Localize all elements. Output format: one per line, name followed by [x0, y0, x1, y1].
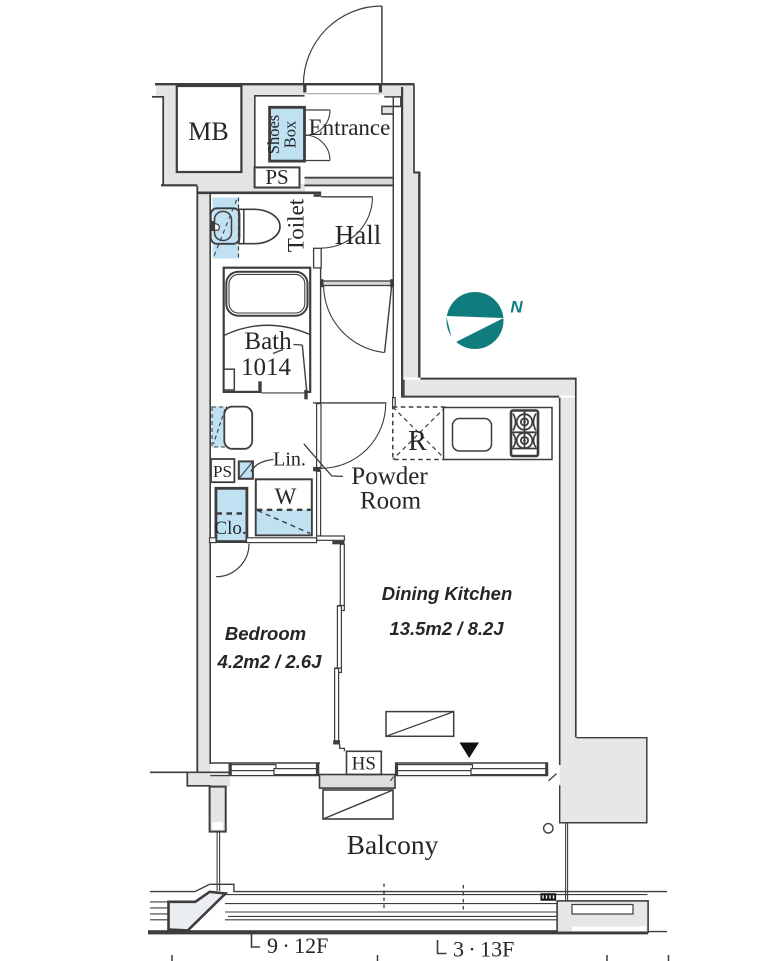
svg-text:Dining Kitchen: Dining Kitchen [382, 583, 513, 604]
svg-text:Entrance: Entrance [309, 115, 391, 140]
svg-text:13.5m2 / 8.2J: 13.5m2 / 8.2J [389, 618, 504, 639]
svg-text:9 · 12F: 9 · 12F [267, 933, 328, 958]
svg-text:Lin.: Lin. [273, 449, 306, 471]
svg-text:Toilet: Toilet [284, 198, 309, 252]
svg-text:R: R [408, 426, 427, 457]
svg-text:Powder: Powder [351, 463, 428, 490]
svg-text:4.2m2 / 2.6J: 4.2m2 / 2.6J [217, 651, 323, 672]
svg-text:Box: Box [281, 120, 300, 148]
svg-text:HS: HS [352, 754, 376, 775]
svg-text:Bedroom: Bedroom [225, 623, 306, 644]
svg-text:Room: Room [360, 488, 422, 515]
svg-text:Balcony: Balcony [347, 829, 439, 860]
svg-text:Clo.: Clo. [214, 518, 246, 539]
svg-text:Hall: Hall [335, 220, 382, 250]
svg-text:MB: MB [188, 117, 228, 146]
svg-text:W: W [275, 484, 297, 509]
svg-text:Bath: Bath [244, 328, 292, 355]
svg-text:1014: 1014 [241, 354, 292, 381]
svg-text:3 · 13F: 3 · 13F [453, 937, 514, 961]
svg-text:PS: PS [265, 165, 288, 189]
svg-text:PS: PS [213, 462, 232, 481]
svg-text:N: N [510, 298, 523, 317]
